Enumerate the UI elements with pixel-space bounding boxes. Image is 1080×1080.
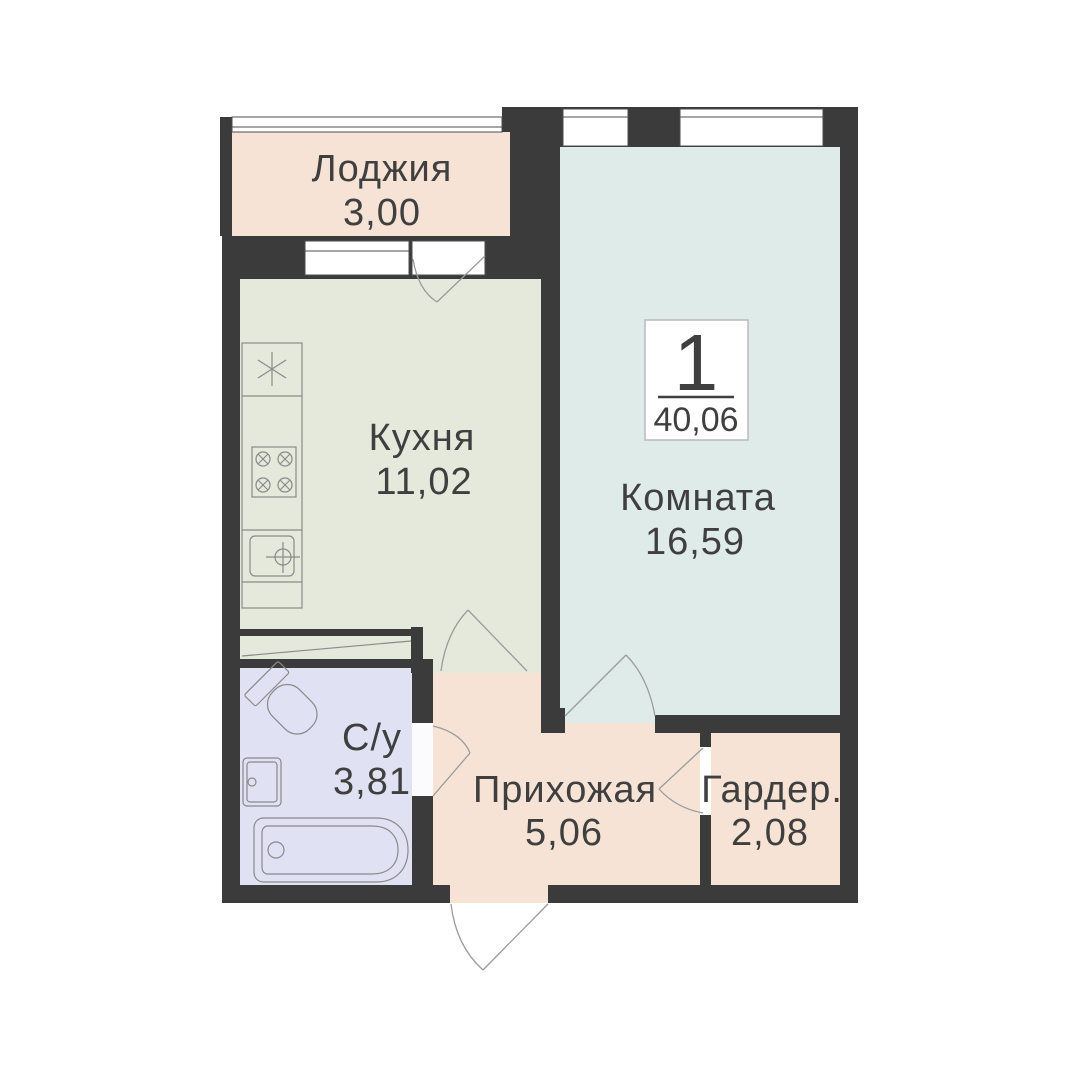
room-area-hallway: 5,06 <box>525 812 603 854</box>
apartment-badge: 1 40,06 <box>645 318 748 440</box>
badge-room-count: 1 <box>674 318 719 407</box>
bathroom-door-threshold <box>412 723 433 796</box>
wall-segment <box>240 659 412 668</box>
room-area-loggia: 3,00 <box>343 192 421 234</box>
wall-segment <box>502 107 512 132</box>
room-label-room: Комната <box>620 477 776 519</box>
wall-segment <box>240 629 423 636</box>
vent-shaft-floor <box>240 636 412 659</box>
wall-segment <box>485 236 541 279</box>
room-label-bathroom: С/у <box>342 717 402 759</box>
room-label-wardrobe: Гардер. <box>701 769 843 811</box>
kitchen-window <box>305 241 409 275</box>
wall-segment <box>541 708 565 733</box>
room-label-kitchen: Кухня <box>369 417 476 459</box>
floor-plan: 1 40,06 Лоджия 3,00 Кухня 11,02 Комната … <box>0 0 1080 1080</box>
wall-segment <box>305 275 485 279</box>
balcony-door-panel <box>412 241 485 275</box>
room-area-kitchen: 11,02 <box>375 461 472 503</box>
wall-segment <box>700 723 711 747</box>
wall-segment <box>700 815 711 885</box>
wall-segment <box>655 715 840 733</box>
badge-total-area: 40,06 <box>653 401 738 439</box>
wall-segment <box>548 885 858 903</box>
wall-segment <box>305 236 485 241</box>
entrance-door-swing <box>451 904 548 970</box>
room-area-wardrobe: 2,08 <box>731 812 809 854</box>
room-label-loggia: Лоджия <box>312 148 453 190</box>
wall-segment <box>222 236 240 903</box>
wall-segment <box>220 117 232 236</box>
wall-segment <box>510 131 560 238</box>
wall-segment <box>231 236 305 279</box>
room-label-hallway: Прихожая <box>473 769 657 811</box>
room-area-bathroom: 3,81 <box>333 761 411 803</box>
room-window-left <box>563 109 628 146</box>
floor-plan-page: 1 40,06 Лоджия 3,00 Кухня 11,02 Комната … <box>0 0 1080 1080</box>
wall-segment <box>412 659 433 723</box>
loggia-glazing <box>232 117 502 132</box>
wall-segment <box>412 796 433 885</box>
room-window-right <box>680 109 823 146</box>
wall-segment <box>222 885 450 903</box>
wall-segment <box>541 236 560 715</box>
room-area-room: 16,59 <box>645 521 745 563</box>
